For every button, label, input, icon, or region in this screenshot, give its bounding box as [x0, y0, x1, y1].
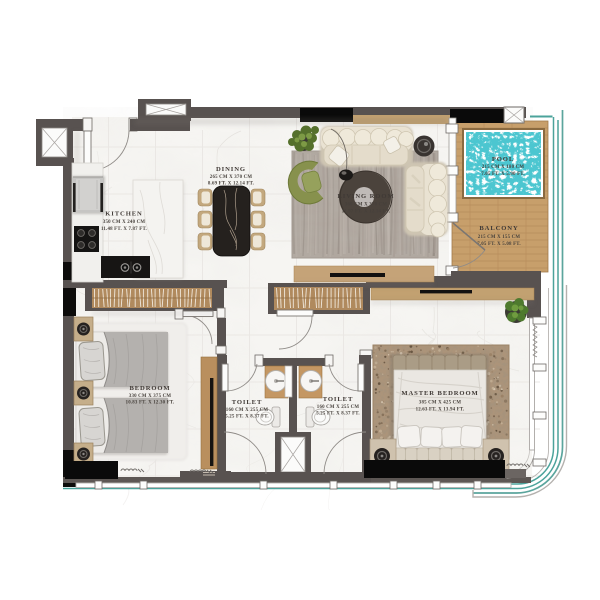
svg-text:12.63 FT. X 13.94 FT.: 12.63 FT. X 13.94 FT. — [416, 408, 465, 413]
svg-text:LIVING ROOM: LIVING ROOM — [338, 193, 395, 200]
svg-text:330 CM X 375 CM: 330 CM X 375 CM — [129, 394, 172, 399]
svg-text:11.97 FT. X 12.14 FT.: 11.97 FT. X 12.14 FT. — [342, 210, 391, 215]
svg-text:215 CM X 180 CM: 215 CM X 180 CM — [482, 165, 525, 170]
svg-text:DINING: DINING — [216, 166, 246, 173]
svg-text:5.25 FT. X 8.37 FT.: 5.25 FT. X 8.37 FT. — [225, 415, 269, 420]
svg-text:360 CM X 370 CM: 360 CM X 370 CM — [345, 203, 388, 208]
svg-text:KITCHEN: KITCHEN — [105, 211, 142, 218]
svg-text:7.05 FT. X 5.08 FT.: 7.05 FT. X 5.08 FT. — [477, 242, 521, 247]
svg-text:POOL: POOL — [492, 156, 514, 163]
svg-text:5.25 FT. X 8.37 FT.: 5.25 FT. X 8.37 FT. — [316, 412, 360, 417]
svg-text:11.48 FT. X 7.87 FT.: 11.48 FT. X 7.87 FT. — [101, 227, 147, 232]
svg-text:215 CM X 155 CM: 215 CM X 155 CM — [478, 235, 521, 240]
svg-text:160 CM X 255 CM: 160 CM X 255 CM — [226, 408, 269, 413]
svg-text:TOILET: TOILET — [232, 399, 263, 406]
svg-text:MASTER BEDROOM: MASTER BEDROOM — [401, 390, 478, 397]
svg-text:7.05 FT. X 5.90 FT.: 7.05 FT. X 5.90 FT. — [481, 172, 525, 177]
svg-text:385 CM X 425 CM: 385 CM X 425 CM — [419, 401, 462, 406]
svg-text:BALCONY: BALCONY — [479, 225, 518, 232]
svg-text:TOILET: TOILET — [323, 396, 354, 403]
svg-text:10.83 FT. X 12.30 FT.: 10.83 FT. X 12.30 FT. — [126, 401, 175, 406]
svg-text:160 CM X 255 CM: 160 CM X 255 CM — [317, 405, 360, 410]
svg-text:265 CM X 370 CM: 265 CM X 370 CM — [210, 175, 253, 180]
svg-text:350 CM X 240 CM: 350 CM X 240 CM — [103, 220, 146, 225]
svg-text:BEDROOM: BEDROOM — [129, 385, 170, 392]
